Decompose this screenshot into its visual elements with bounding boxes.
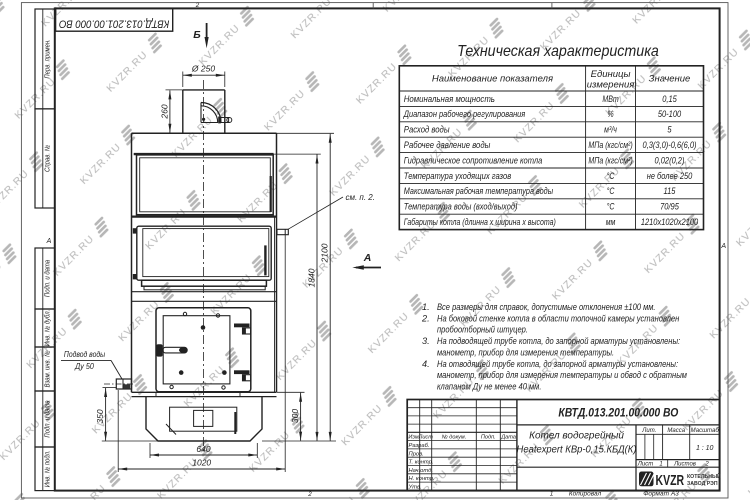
svg-text:Инв. № подл.: Инв. № подл. bbox=[43, 450, 52, 487]
svg-text:Листов: Листов bbox=[673, 461, 696, 467]
svg-text:А: А bbox=[46, 238, 52, 245]
svg-text:Инв. № дубл.: Инв. № дубл. bbox=[43, 310, 52, 347]
svg-text:см. п. 2.: см. п. 2. bbox=[346, 193, 375, 202]
svg-text:3.: 3. bbox=[422, 336, 430, 346]
svg-text:манометр, прибор для измерения: манометр, прибор для измерения температу… bbox=[437, 369, 687, 380]
svg-text:Гидравлическое сопротивление к: Гидравлическое сопротивление котла bbox=[404, 155, 543, 166]
svg-text:А: А bbox=[720, 243, 726, 250]
svg-text:Ø 250: Ø 250 bbox=[191, 64, 215, 74]
svg-text:Масса: Масса bbox=[667, 428, 685, 434]
svg-text:Пров.: Пров. bbox=[409, 451, 424, 457]
svg-text:КВТД.013.201.00.000 ВО: КВТД.013.201.00.000 ВО bbox=[558, 407, 678, 420]
svg-text:Лист: Лист bbox=[637, 461, 653, 467]
svg-text:°С: °С bbox=[607, 171, 615, 181]
svg-text:4.: 4. bbox=[422, 359, 430, 369]
svg-text:1 : 10: 1 : 10 bbox=[696, 445, 714, 452]
svg-text:Максимальная рабочая температу: Максимальная рабочая температура воды bbox=[404, 185, 553, 196]
svg-text:115: 115 bbox=[664, 187, 676, 197]
svg-text:2100: 2100 bbox=[320, 243, 330, 263]
svg-text:МПа (кгс/см²): МПа (кгс/см²) bbox=[588, 140, 633, 150]
svg-text:640: 640 bbox=[196, 444, 210, 454]
svg-text:ЗАВОД РЭП: ЗАВОД РЭП bbox=[687, 481, 718, 487]
svg-text:№ докум.: № докум. bbox=[442, 435, 467, 441]
svg-text:Подвод воды: Подвод воды bbox=[64, 349, 105, 359]
svg-text:2: 2 bbox=[195, 2, 200, 9]
svg-text:Подп.: Подп. bbox=[481, 435, 496, 441]
svg-text:300: 300 bbox=[290, 409, 300, 423]
svg-text:МПа (кгс/см²): МПа (кгс/см²) bbox=[588, 156, 633, 166]
svg-text:1020: 1020 bbox=[192, 458, 211, 468]
svg-text:КОТЕЛЬНЫЙ: КОТЕЛЬНЫЙ bbox=[687, 472, 721, 480]
svg-text:КВТД.013.201.00.000 ВО: КВТД.013.201.00.000 ВО bbox=[59, 17, 169, 29]
svg-text:клапаном Ду не менее 40 мм.: клапаном Ду не менее 40 мм. bbox=[437, 381, 541, 392]
svg-text:На боковой стенке котла в обла: На боковой стенке котла в области топочн… bbox=[437, 313, 680, 324]
svg-text:°С: °С bbox=[607, 186, 615, 196]
svg-text:70/95: 70/95 bbox=[660, 202, 679, 212]
svg-text:Наименование показателя: Наименование показателя bbox=[432, 74, 553, 85]
svg-text:Лит.: Лит. bbox=[641, 428, 656, 434]
svg-text:Все размеры для справок, допус: Все размеры для справок, допустимые откл… bbox=[437, 301, 656, 312]
svg-text:Подп. и дата: Подп. и дата bbox=[43, 400, 52, 438]
svg-text:МВт: МВт bbox=[602, 94, 619, 104]
svg-text:А: А bbox=[363, 252, 372, 264]
svg-text:Техническая характеристика: Техническая характеристика bbox=[457, 43, 659, 60]
svg-text:измерения: измерения bbox=[587, 80, 635, 91]
svg-text:Изм: Изм bbox=[408, 435, 419, 441]
svg-text:Рабочее давление воды: Рабочее давление воды bbox=[404, 139, 491, 150]
svg-text:0,02(0,2): 0,02(0,2) bbox=[655, 156, 685, 166]
svg-text:Значение: Значение bbox=[649, 74, 691, 85]
svg-text:мм: мм bbox=[606, 217, 616, 227]
svg-text:Лист: Лист bbox=[417, 435, 433, 441]
svg-text:На отводящей трубе котла, до з: На отводящей трубе котла, до запорной ар… bbox=[437, 358, 678, 369]
svg-text:Т. контр.: Т. контр. bbox=[409, 460, 434, 466]
svg-text:2: 2 bbox=[704, 461, 709, 467]
svg-text:°С: °С bbox=[607, 202, 615, 212]
svg-text:Взам. инв. №: Взам. инв. № bbox=[44, 351, 52, 388]
svg-text:Утв.: Утв. bbox=[408, 485, 422, 491]
svg-text:Расход воды: Расход воды bbox=[404, 124, 450, 135]
svg-text:Подп. и дата: Подп. и дата bbox=[43, 260, 52, 298]
svg-text:0,15: 0,15 bbox=[662, 94, 677, 104]
svg-text:Котел водогрейный: Котел водогрейный bbox=[529, 430, 624, 441]
svg-text:манометр, прибор для измерения: манометр, прибор для измерения температу… bbox=[437, 347, 614, 358]
svg-text:0,3(3,0)-0,6(6,0): 0,3(3,0)-0,6(6,0) bbox=[643, 140, 697, 150]
svg-text:Температура уходящих газов: Температура уходящих газов bbox=[404, 170, 512, 181]
svg-text:Дата: Дата bbox=[500, 435, 516, 441]
svg-text:260: 260 bbox=[159, 104, 169, 119]
svg-text:1210х1020х2100: 1210х1020х2100 bbox=[641, 217, 699, 227]
svg-text:м³/ч: м³/ч bbox=[604, 125, 617, 135]
svg-text:Габариты котла (длинна х ширин: Габариты котла (длинна х ширина х высота… bbox=[404, 217, 556, 227]
svg-text:1: 1 bbox=[659, 461, 662, 467]
svg-text:Масштаб: Масштаб bbox=[691, 428, 720, 434]
svg-text:пробоотборный штуцер.: пробоотборный штуцер. bbox=[437, 324, 528, 335]
svg-text:KVZR: KVZR bbox=[656, 471, 685, 488]
svg-text:Перв. примен.: Перв. примен. bbox=[44, 39, 52, 78]
svg-text:Б: Б bbox=[193, 29, 201, 41]
svg-text:Ду 50: Ду 50 bbox=[74, 361, 94, 371]
svg-text:1.: 1. bbox=[422, 302, 430, 312]
svg-text:%: % bbox=[607, 109, 613, 119]
svg-text:Н. контр.: Н. контр. bbox=[409, 476, 435, 482]
svg-text:не более 250: не более 250 bbox=[647, 171, 693, 181]
svg-text:2.: 2. bbox=[421, 313, 430, 323]
svg-text:2: 2 bbox=[307, 491, 312, 498]
svg-text:Единицы: Единицы bbox=[591, 69, 631, 80]
svg-text:Диапазон рабочего регулировани: Диапазон рабочего регулирования bbox=[403, 108, 526, 119]
svg-text:Разраб.: Разраб. bbox=[409, 443, 430, 449]
svg-text:На подводящей трубе котла, до: На подводящей трубе котла, до запорной а… bbox=[437, 335, 680, 346]
svg-text:Справ. №: Справ. № bbox=[44, 145, 52, 172]
svg-text:350: 350 bbox=[95, 409, 105, 423]
svg-text:Номинальная мощность: Номинальная мощность bbox=[404, 93, 495, 104]
svg-text:Нач.отд.: Нач.отд. bbox=[409, 468, 433, 474]
svg-text:5: 5 bbox=[667, 125, 672, 135]
svg-text:50-100: 50-100 bbox=[658, 110, 682, 120]
svg-text:Heatexpert КВр-0,15.КБД(К): Heatexpert КВр-0,15.КБД(К) bbox=[517, 444, 637, 456]
svg-text:1840: 1840 bbox=[307, 268, 317, 287]
svg-text:Температура воды (вход/выход): Температура воды (вход/выход) bbox=[404, 201, 518, 212]
